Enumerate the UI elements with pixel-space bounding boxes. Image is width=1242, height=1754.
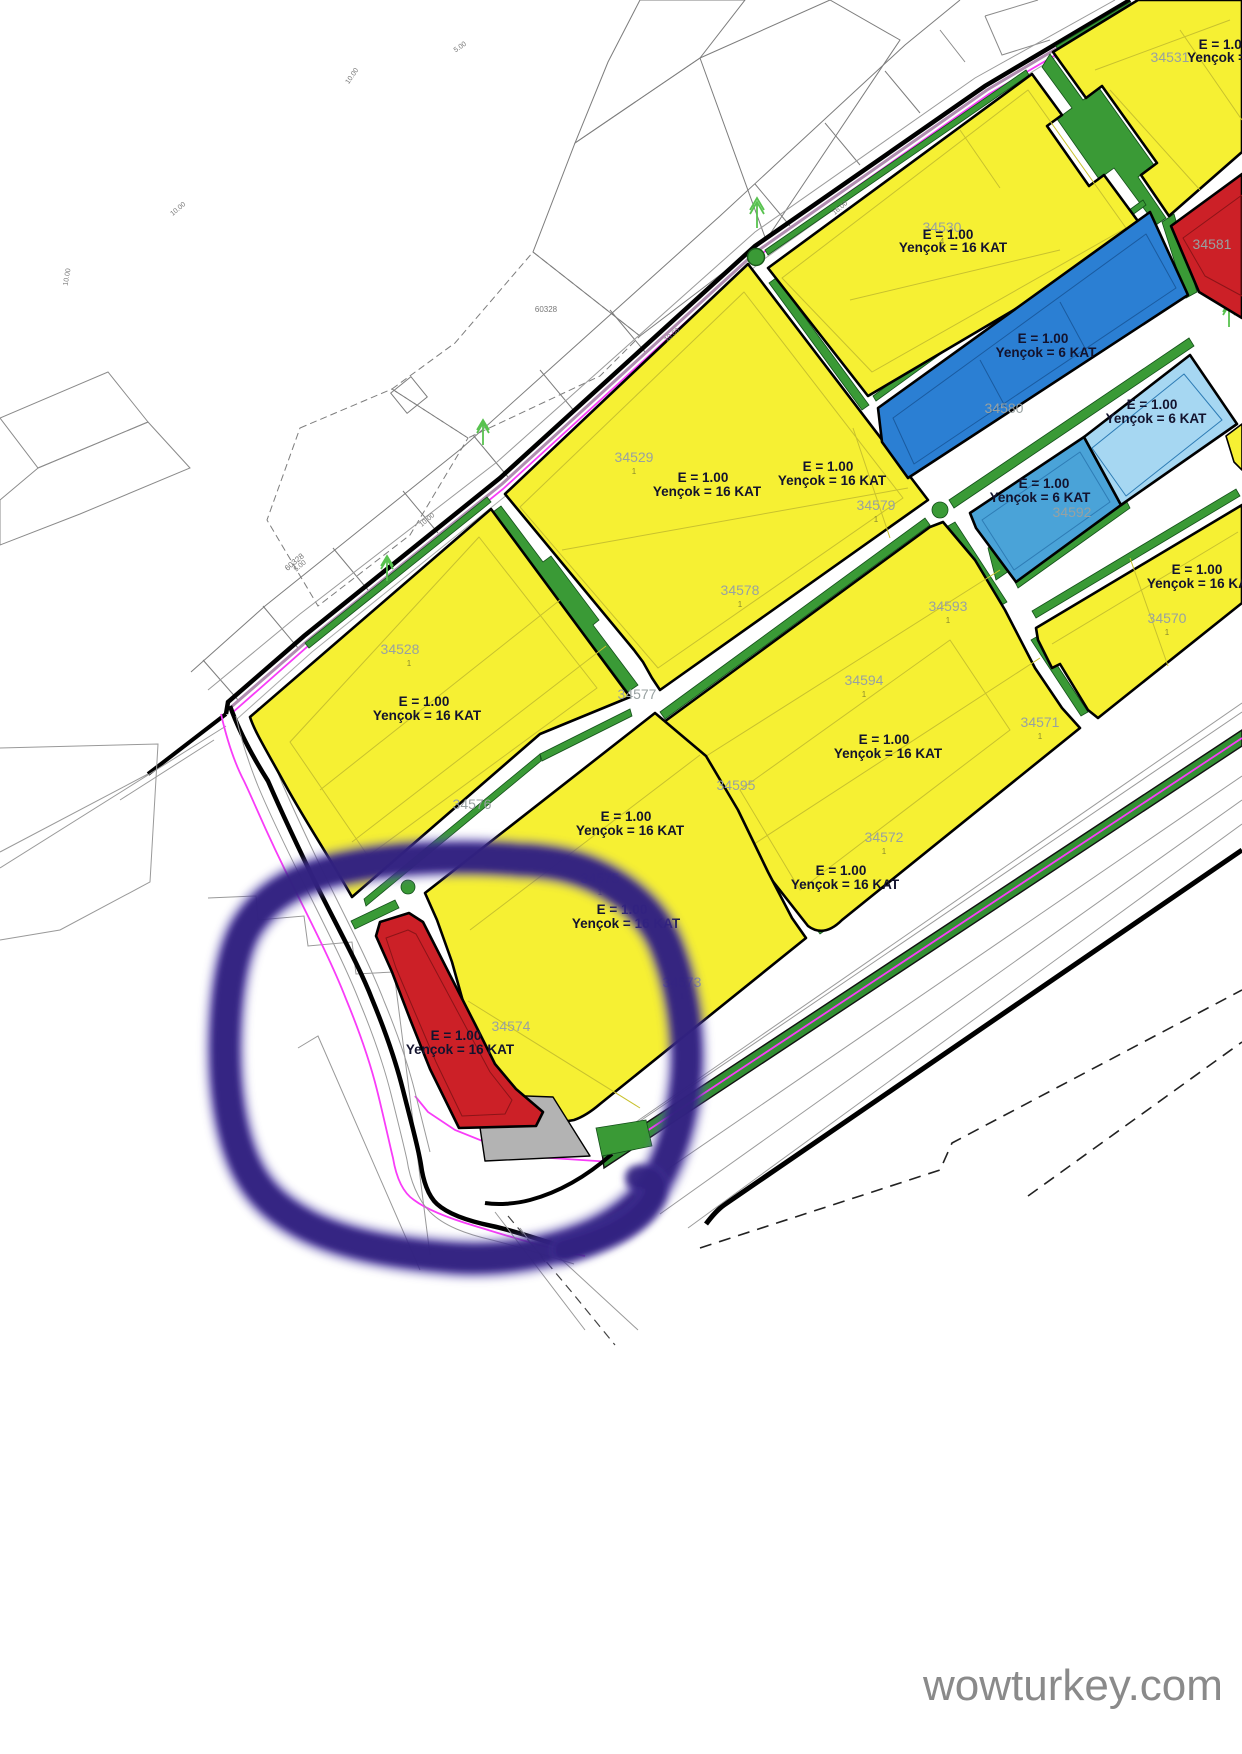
- svg-text:1: 1: [882, 847, 887, 856]
- svg-text:E = 1.00: E = 1.00: [803, 459, 854, 474]
- svg-text:34574: 34574: [492, 1018, 531, 1034]
- svg-text:34572: 34572: [865, 829, 904, 845]
- svg-text:Yençok = 16 KAT: Yençok = 16 KAT: [899, 240, 1008, 255]
- svg-text:E = 1.00: E = 1.00: [1127, 397, 1178, 412]
- svg-text:E = 1.00: E = 1.00: [1172, 562, 1223, 577]
- svg-text:34595: 34595: [717, 777, 756, 793]
- svg-text:34529: 34529: [615, 449, 654, 465]
- svg-text:1: 1: [1165, 628, 1170, 637]
- svg-text:34580: 34580: [985, 400, 1024, 416]
- svg-text:34581: 34581: [1193, 236, 1232, 252]
- svg-text:34594: 34594: [845, 672, 884, 688]
- svg-text:E = 1.00: E = 1.00: [601, 809, 652, 824]
- svg-text:Yençok = 16: Yençok = 16: [1187, 50, 1242, 65]
- svg-text:10.00: 10.00: [345, 67, 361, 85]
- svg-text:E = 1.00: E = 1.00: [399, 694, 450, 709]
- svg-text:1: 1: [946, 616, 951, 625]
- svg-text:E = 1.00: E = 1.00: [859, 732, 910, 747]
- svg-text:Yençok = 6 KAT: Yençok = 6 KAT: [1106, 411, 1207, 426]
- svg-text:34579: 34579: [857, 497, 896, 513]
- svg-text:Yençok = 16 KAT: Yençok = 16 KAT: [576, 823, 685, 838]
- svg-text:Yençok = 16 KAT: Yençok = 16 KAT: [373, 708, 482, 723]
- svg-text:1: 1: [1038, 732, 1043, 741]
- svg-text:34528: 34528: [381, 641, 420, 657]
- svg-text:5.00: 5.00: [453, 41, 468, 55]
- svg-text:60328: 60328: [535, 305, 558, 314]
- svg-text:Yençok = 16 KAT: Yençok = 16 KAT: [1147, 576, 1242, 591]
- svg-text:Yençok = 16 KAT: Yençok = 16 KAT: [406, 1042, 515, 1057]
- svg-text:1: 1: [738, 600, 743, 609]
- svg-text:E = 1.00: E = 1.00: [1018, 331, 1069, 346]
- svg-text:Yençok = 16 KAT: Yençok = 16 KAT: [778, 473, 887, 488]
- svg-text:E = 1.00: E = 1.00: [431, 1028, 482, 1043]
- svg-text:wowturkey.com: wowturkey.com: [922, 1661, 1223, 1710]
- svg-text:1: 1: [632, 467, 637, 476]
- svg-text:4: 4: [940, 237, 945, 246]
- svg-text:E = 1.00: E = 1.00: [678, 470, 729, 485]
- svg-text:34531: 34531: [1151, 49, 1190, 65]
- svg-text:34592: 34592: [1053, 504, 1092, 520]
- svg-text:34578: 34578: [721, 582, 760, 598]
- svg-text:1: 1: [874, 515, 879, 524]
- svg-text:34570: 34570: [1148, 610, 1187, 626]
- svg-text:E = 1.00: E = 1.00: [816, 863, 867, 878]
- svg-text:Yençok = 16 KAT: Yençok = 16 KAT: [834, 746, 943, 761]
- svg-text:10.00: 10.00: [418, 512, 436, 529]
- svg-text:Yençok = 16 KAT: Yençok = 16 KAT: [791, 877, 900, 892]
- svg-text:34576: 34576: [453, 796, 492, 812]
- svg-text:E = 1.00: E = 1.00: [1019, 476, 1070, 491]
- svg-text:Yençok = 6 KAT: Yençok = 6 KAT: [990, 490, 1091, 505]
- svg-text:1: 1: [862, 690, 867, 699]
- svg-text:1: 1: [407, 659, 412, 668]
- svg-text:Yençok = 6 KAT: Yençok = 6 KAT: [996, 345, 1097, 360]
- svg-text:10.00: 10.00: [169, 201, 187, 218]
- svg-text:Yençok = 16 KAT: Yençok = 16 KAT: [653, 484, 762, 499]
- svg-text:34571: 34571: [1021, 714, 1060, 730]
- svg-text:10.00: 10.00: [63, 268, 73, 287]
- svg-text:34593: 34593: [929, 598, 968, 614]
- svg-text:34577: 34577: [618, 686, 657, 702]
